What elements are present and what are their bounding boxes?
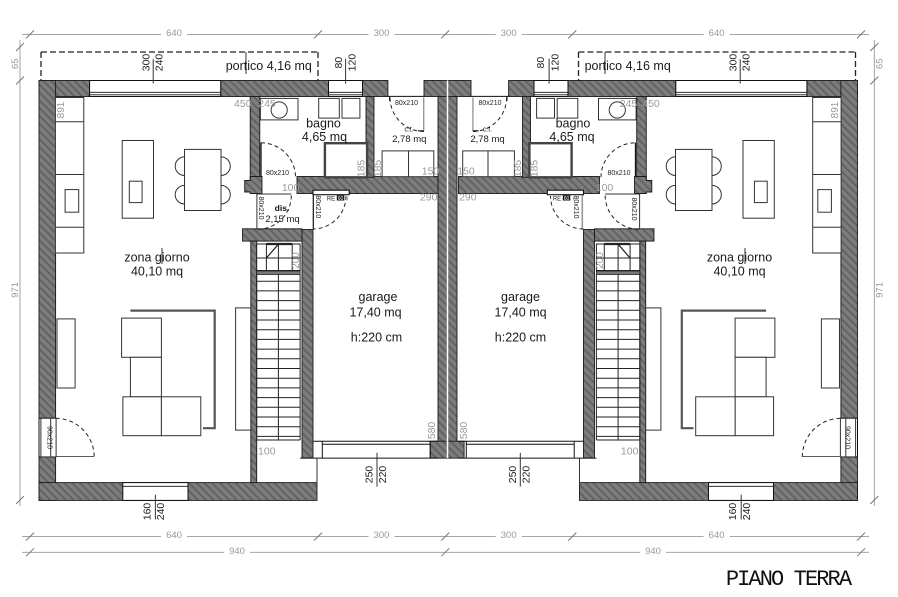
- svg-text:2,78 mq: 2,78 mq: [470, 134, 504, 145]
- svg-text:940: 940: [229, 546, 245, 557]
- svg-text:80x210: 80x210: [630, 198, 637, 221]
- svg-text:971: 971: [874, 282, 885, 298]
- svg-text:220: 220: [377, 466, 389, 484]
- svg-text:80: 80: [535, 57, 547, 69]
- svg-text:640: 640: [166, 28, 182, 39]
- svg-text:100: 100: [621, 446, 639, 458]
- svg-text:150: 150: [422, 166, 440, 178]
- svg-text:portico 4,16 mq: portico 4,16 mq: [226, 59, 312, 73]
- svg-text:240: 240: [740, 54, 752, 72]
- svg-text:17,40 mq: 17,40 mq: [494, 306, 546, 320]
- svg-text:zona giorno: zona giorno: [124, 251, 189, 265]
- svg-text:240: 240: [741, 503, 753, 521]
- svg-text:garage: garage: [501, 290, 540, 304]
- svg-text:100: 100: [282, 182, 300, 194]
- svg-text:940: 940: [645, 546, 661, 557]
- svg-text:garage: garage: [359, 290, 398, 304]
- svg-text:80x210: 80x210: [257, 197, 264, 220]
- svg-text:RE: RE: [553, 196, 561, 202]
- svg-text:160: 160: [727, 503, 739, 521]
- svg-text:zona giorno: zona giorno: [707, 251, 772, 265]
- svg-text:100: 100: [596, 182, 614, 194]
- svg-text:120: 120: [550, 54, 562, 72]
- svg-text:290: 290: [420, 192, 438, 204]
- svg-text:891: 891: [830, 101, 841, 118]
- svg-text:300: 300: [374, 28, 390, 39]
- svg-text:80x210: 80x210: [314, 195, 321, 218]
- svg-text:RE: RE: [327, 196, 335, 202]
- svg-text:640: 640: [709, 530, 725, 541]
- svg-text:4,65 mq: 4,65 mq: [302, 130, 347, 144]
- svg-text:40,10 mq: 40,10 mq: [713, 265, 765, 279]
- svg-text:185: 185: [372, 160, 384, 178]
- svg-text:450: 450: [642, 98, 660, 110]
- svg-text:300: 300: [501, 530, 517, 541]
- svg-text:250: 250: [507, 466, 519, 484]
- svg-text:290: 290: [459, 192, 477, 204]
- svg-text:portico 4,16 mq: portico 4,16 mq: [585, 59, 671, 73]
- svg-text:300: 300: [374, 530, 390, 541]
- svg-text:dis.: dis.: [275, 203, 290, 213]
- svg-text:h:220 cm: h:220 cm: [495, 331, 546, 345]
- svg-text:h:220 cm: h:220 cm: [351, 331, 402, 345]
- svg-text:300: 300: [501, 28, 517, 39]
- svg-text:160: 160: [141, 503, 153, 521]
- svg-text:220: 220: [520, 466, 532, 484]
- svg-text:185: 185: [512, 160, 524, 178]
- svg-text:80x210: 80x210: [266, 170, 289, 177]
- svg-text:250: 250: [363, 466, 375, 484]
- svg-text:65: 65: [10, 59, 21, 70]
- svg-text:80x210: 80x210: [608, 170, 631, 177]
- svg-text:185: 185: [529, 160, 541, 178]
- svg-text:80x210: 80x210: [479, 100, 502, 107]
- svg-text:245: 245: [258, 98, 276, 110]
- svg-text:185: 185: [355, 160, 367, 178]
- svg-text:17,40 mq: 17,40 mq: [349, 306, 401, 320]
- svg-text:65: 65: [874, 59, 885, 70]
- svg-text:450: 450: [234, 98, 252, 110]
- svg-text:40,10 mq: 40,10 mq: [131, 265, 183, 279]
- svg-text:640: 640: [709, 28, 725, 39]
- svg-text:4,65 mq: 4,65 mq: [549, 130, 594, 144]
- svg-text:80: 80: [333, 57, 345, 69]
- svg-text:80x210: 80x210: [572, 196, 579, 219]
- svg-text:bagno: bagno: [306, 117, 341, 131]
- svg-text:60: 60: [564, 196, 570, 202]
- svg-text:80x210: 80x210: [395, 100, 418, 107]
- svg-text:200: 200: [291, 252, 302, 269]
- svg-text:245: 245: [620, 98, 638, 110]
- svg-text:90x210: 90x210: [45, 426, 52, 449]
- svg-text:200: 200: [595, 252, 606, 269]
- svg-text:580: 580: [426, 422, 438, 440]
- svg-text:PIANO TERRA: PIANO TERRA: [726, 567, 853, 592]
- svg-text:971: 971: [10, 282, 21, 298]
- svg-text:90x210: 90x210: [843, 426, 850, 449]
- svg-text:2,15 mq: 2,15 mq: [265, 214, 299, 225]
- svg-text:60: 60: [338, 196, 344, 202]
- svg-text:120: 120: [347, 54, 359, 72]
- svg-text:2,78 mq: 2,78 mq: [392, 134, 426, 145]
- svg-text:100: 100: [258, 446, 276, 458]
- svg-text:640: 640: [166, 530, 182, 541]
- svg-text:240: 240: [155, 503, 167, 521]
- svg-text:300: 300: [727, 54, 739, 72]
- svg-text:580: 580: [458, 422, 470, 440]
- svg-text:150: 150: [457, 166, 475, 178]
- svg-text:891: 891: [56, 101, 67, 118]
- svg-text:bagno: bagno: [556, 117, 591, 131]
- svg-text:300: 300: [140, 54, 152, 72]
- svg-text:240: 240: [153, 54, 165, 72]
